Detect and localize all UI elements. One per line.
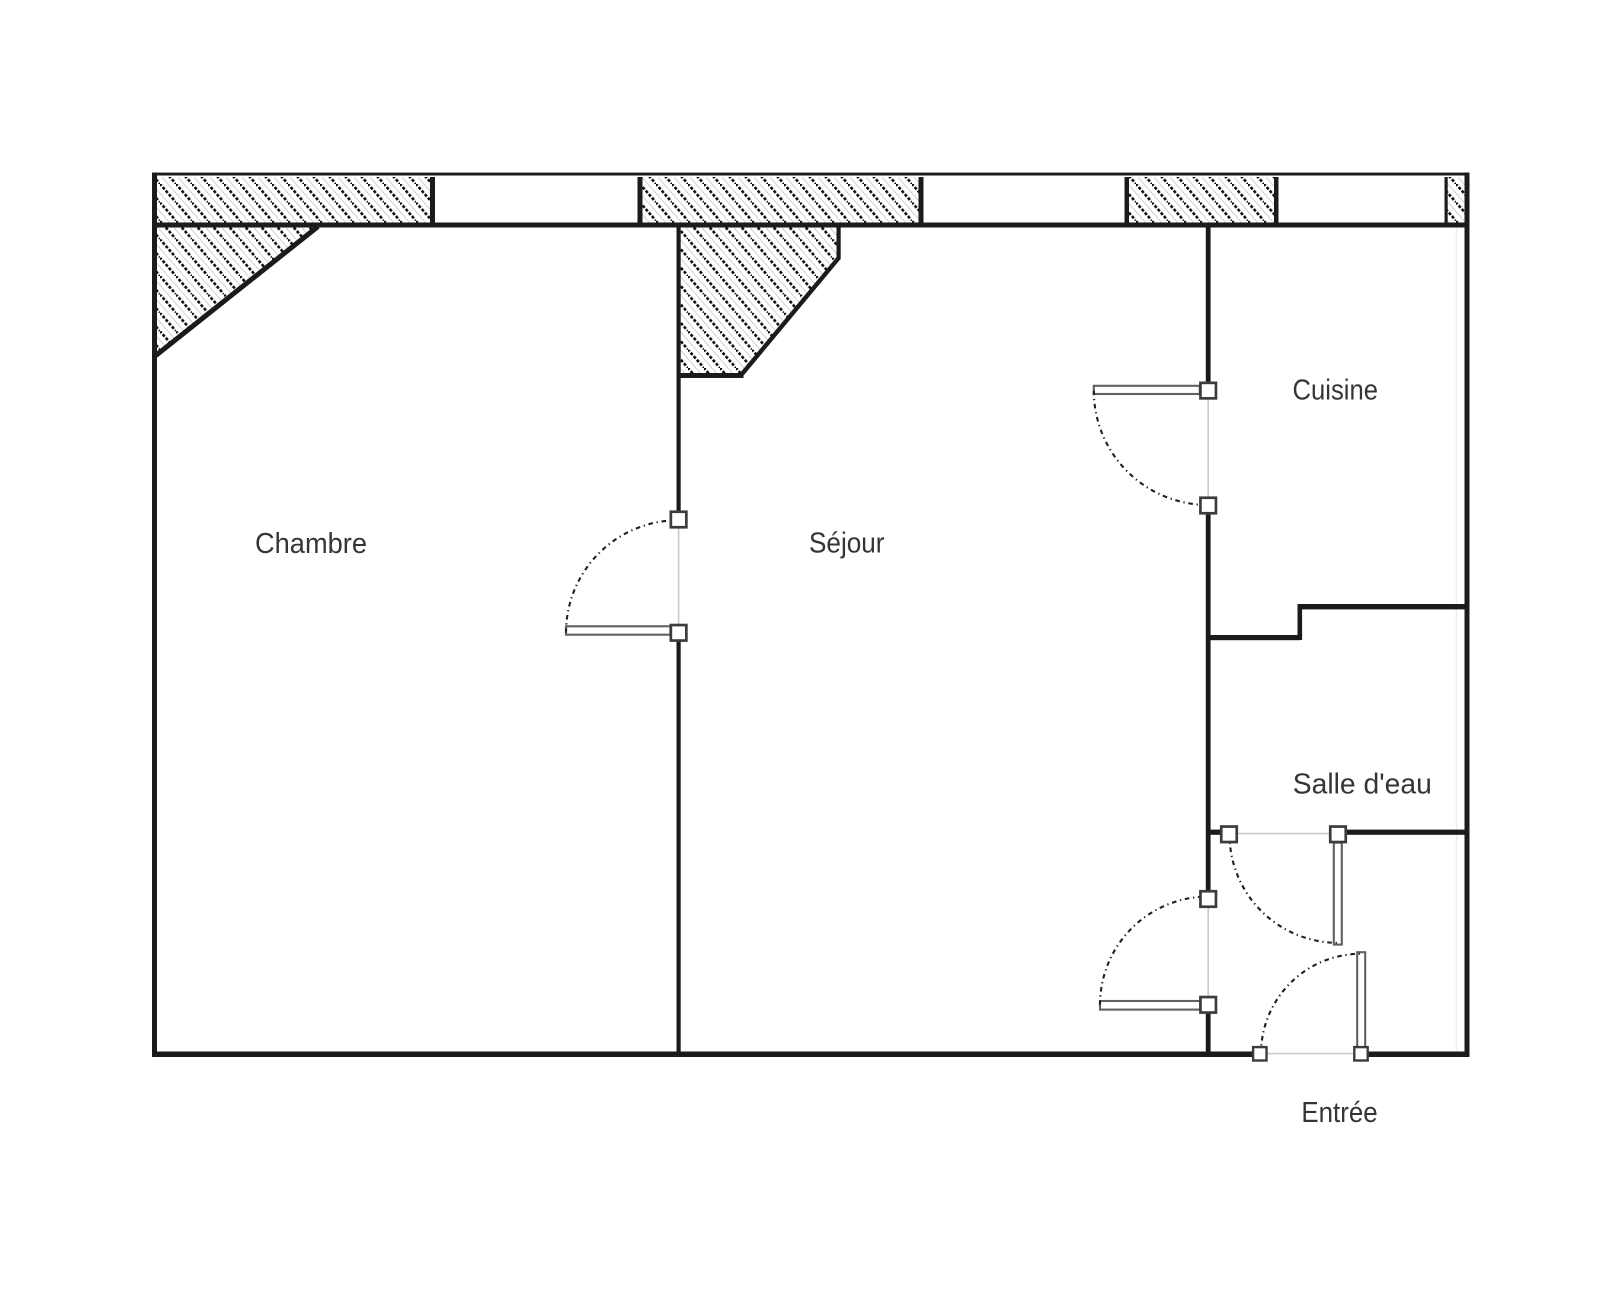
svg-text:Entrée: Entrée bbox=[1301, 1097, 1377, 1129]
svg-text:Séjour: Séjour bbox=[809, 527, 885, 559]
svg-text:Chambre: Chambre bbox=[255, 528, 367, 560]
svg-text:Cuisine: Cuisine bbox=[1293, 374, 1379, 406]
svg-text:Salle d'eau: Salle d'eau bbox=[1293, 768, 1432, 800]
